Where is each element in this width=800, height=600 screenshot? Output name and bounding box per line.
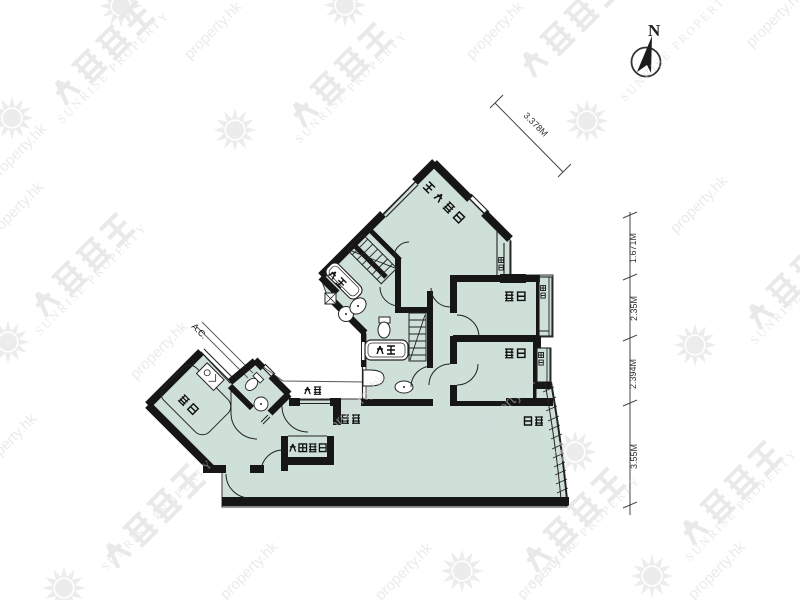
svg-text:2.394M: 2.394M xyxy=(628,359,638,389)
svg-text:3.55M: 3.55M xyxy=(629,444,639,469)
svg-text:2.35M: 2.35M xyxy=(629,296,639,321)
svg-text:N: N xyxy=(648,21,661,40)
svg-text:1.671M: 1.671M xyxy=(628,233,638,263)
